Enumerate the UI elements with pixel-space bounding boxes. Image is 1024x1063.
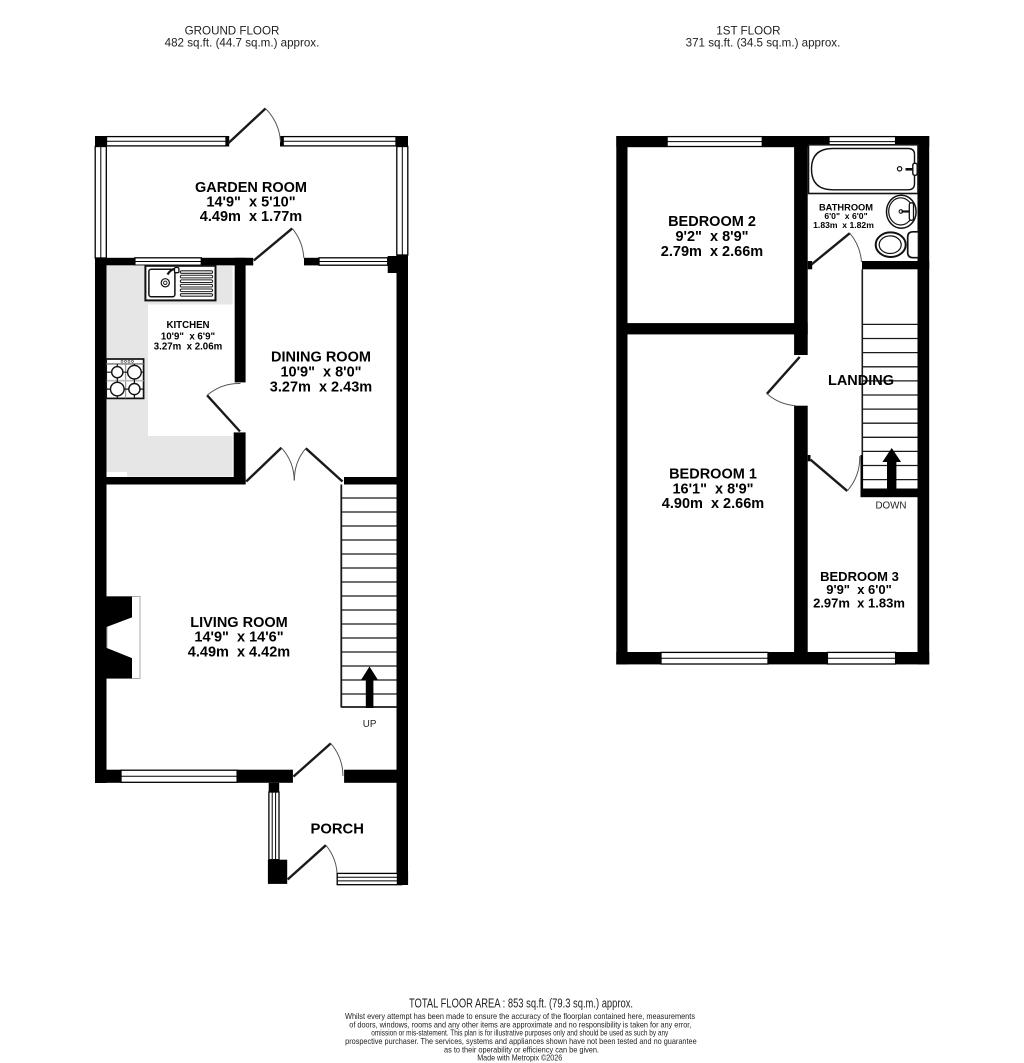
svg-text:GROUND FLOOR: GROUND FLOOR xyxy=(185,25,280,38)
svg-text:3.27m x 2.06m: 3.27m x 2.06m xyxy=(154,342,223,353)
svg-text:4.49m x 4.42m: 4.49m x 4.42m xyxy=(188,644,290,660)
svg-text:1ST FLOOR: 1ST FLOOR xyxy=(716,25,780,38)
svg-text:2.97m x 1.83m: 2.97m x 1.83m xyxy=(813,596,905,611)
svg-text:3.27m x 2.43m: 3.27m x 2.43m xyxy=(270,379,372,395)
svg-text:PORCH: PORCH xyxy=(310,822,363,838)
svg-text:4.49m x 1.77m: 4.49m x 1.77m xyxy=(200,209,302,225)
svg-text:1.83m x 1.82m: 1.83m x 1.82m xyxy=(813,220,874,230)
svg-text:16'1" x 8'9": 16'1" x 8'9" xyxy=(672,481,753,497)
svg-text:LANDING: LANDING xyxy=(828,373,894,389)
svg-text:KITCHEN: KITCHEN xyxy=(166,320,209,331)
svg-text:BEDROOM 2: BEDROOM 2 xyxy=(668,214,756,230)
svg-text:9'2" x 8'9": 9'2" x 8'9" xyxy=(675,229,748,245)
svg-text:LIVING ROOM: LIVING ROOM xyxy=(190,615,287,631)
svg-text:4.90m x 2.66m: 4.90m x 2.66m xyxy=(662,496,764,512)
svg-text:2.79m x 2.66m: 2.79m x 2.66m xyxy=(661,244,763,260)
svg-text:DINING ROOM: DINING ROOM xyxy=(271,349,371,365)
svg-text:10'9" x 8'0": 10'9" x 8'0" xyxy=(280,364,361,380)
svg-text:482 sq.ft. (44.7 sq.m.) approx: 482 sq.ft. (44.7 sq.m.) approx. xyxy=(165,37,320,50)
svg-text:TOTAL FLOOR AREA : 853 sq.ft.: TOTAL FLOOR AREA : 853 sq.ft. (79.3 sq.m… xyxy=(409,997,633,1011)
svg-text:371 sq.ft. (34.5 sq.m.) approx: 371 sq.ft. (34.5 sq.m.) approx. xyxy=(686,37,841,50)
svg-text:DOWN: DOWN xyxy=(875,501,906,512)
svg-text:Made with Metropix ©2026: Made with Metropix ©2026 xyxy=(477,1054,562,1063)
svg-text:BEDROOM 1: BEDROOM 1 xyxy=(669,467,757,483)
svg-text:UP: UP xyxy=(363,719,377,730)
svg-text:14'9" x 14'6": 14'9" x 14'6" xyxy=(194,630,283,646)
svg-text:10'9" x 6'9": 10'9" x 6'9" xyxy=(161,331,215,342)
